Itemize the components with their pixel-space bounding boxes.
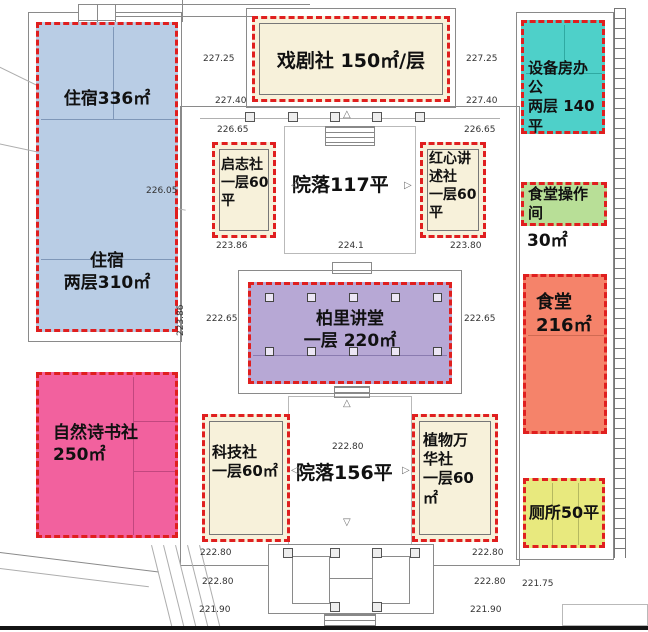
zone-drama-club: 戏剧社 150㎡/层	[252, 16, 450, 102]
elevation-mark: 223.86	[216, 241, 248, 251]
north-symbol-line	[79, 20, 115, 21]
column	[265, 293, 274, 302]
elevation-mark: 222.65	[206, 314, 238, 324]
upper-courtyard-label: 院落117平	[292, 170, 389, 197]
elevation-mark: 221.75	[522, 579, 554, 589]
elevation-mark: 222.80	[474, 577, 506, 587]
upper-courtyard-stairs	[325, 126, 375, 146]
adjacent-plan-fragment	[562, 604, 648, 626]
zone-tech-club: 科技社 一层60㎡	[202, 414, 290, 542]
triangle-right-icon: ▷	[402, 466, 410, 476]
elevation-mark: 222.80	[332, 442, 364, 452]
floor-plan: 住宿336㎡ 住宿 两层310㎡ 戏剧社 150㎡/层 设备房办公 两层 140…	[0, 0, 648, 632]
zone-canteen-kitchen-label: 食堂操作 间	[528, 185, 588, 223]
column	[415, 112, 425, 122]
elevation-mark: 223.80	[450, 241, 482, 251]
interior-wall	[133, 471, 175, 472]
zone-hongxin-club-label: 红心讲 述社 一层60 平	[429, 151, 476, 223]
zone-equipment-office-label: 设备房办公 两层 140平	[528, 59, 602, 136]
elevation-mark: 227.25	[203, 54, 235, 64]
zone-plant-club: 植物万 华社 一层60 ㎡	[412, 414, 498, 542]
zone-canteen-kitchen-area-label: 30㎡	[527, 226, 568, 251]
zone-canteen-kitchen: 食堂操作 间	[521, 182, 607, 226]
elevation-mark: 227.40	[466, 96, 498, 106]
column	[372, 112, 382, 122]
zone-toilet: 厕所50平	[523, 478, 605, 548]
zone-qizhi-club: 启志社 一层60 平	[212, 142, 276, 238]
site-line	[182, 0, 183, 22]
zone-dorm-336-label: 住宿336㎡	[39, 89, 175, 111]
elevation-mark: 222.80	[202, 577, 234, 587]
hall-south-steps	[334, 386, 370, 398]
zone-nature-poetry-club: 自然诗书社 250㎡	[36, 372, 178, 538]
zone-canteen-label: 食堂 216㎡	[536, 291, 592, 337]
column	[245, 112, 255, 122]
zone-dorm-310: 住宿 两层310㎡	[36, 213, 178, 332]
column	[433, 293, 442, 302]
zone-lecture-hall: 柏里讲堂 一层 220㎡	[248, 282, 452, 384]
zone-toilet-label: 厕所50平	[526, 503, 602, 523]
elevation-mark: 222.80	[200, 548, 232, 558]
elevation-mark: 224.1	[338, 241, 364, 251]
interior-wall	[133, 421, 175, 422]
scale-strip	[614, 8, 626, 558]
elevation-mark: 223.86	[176, 305, 186, 337]
zone-dorm-310-label: 住宿 两层310㎡	[39, 251, 175, 295]
elevation-mark: 226.65	[217, 125, 249, 135]
zone-plant-club-label: 植物万 华社 一层60 ㎡	[423, 431, 474, 508]
site-line	[95, 4, 310, 5]
triangle-down-icon: ▽	[343, 518, 351, 528]
zone-drama-club-label: 戏剧社 150㎡/层	[255, 49, 447, 73]
path-line	[0, 568, 149, 587]
interior-wall	[41, 119, 175, 120]
elevation-mark: 226.05	[146, 186, 178, 196]
slope-hatch	[151, 545, 172, 627]
zone-lecture-hall-label: 柏里讲堂 一层 220㎡	[251, 309, 449, 353]
page-edge-line	[0, 626, 648, 630]
column	[410, 548, 420, 558]
column	[372, 548, 382, 558]
column	[330, 602, 340, 612]
zone-dorm-336: 住宿336㎡	[36, 22, 178, 213]
gate-pavilion-left	[292, 556, 330, 604]
zone-equipment-office: 设备房办公 两层 140平	[521, 20, 605, 134]
elevation-mark: 227.25	[466, 54, 498, 64]
zone-canteen: 食堂 216㎡	[523, 274, 607, 434]
column	[391, 293, 400, 302]
gate-axis-line	[330, 578, 372, 579]
hall-north-porch	[332, 262, 372, 274]
column	[349, 293, 358, 302]
elevation-mark: 226.65	[464, 125, 496, 135]
zone-hongxin-club: 红心讲 述社 一层60 平	[420, 142, 486, 238]
lower-courtyard-label: 院落156平	[296, 458, 393, 485]
zone-nature-poetry-club-label: 自然诗书社 250㎡	[53, 423, 138, 467]
column	[330, 548, 340, 558]
elevation-mark: 227.40	[215, 96, 247, 106]
column	[283, 548, 293, 558]
elevation-mark: 221.90	[470, 605, 502, 615]
column	[307, 293, 316, 302]
triangle-up-icon: △	[343, 110, 351, 120]
triangle-left-icon: ◁	[291, 466, 299, 476]
path-line	[0, 552, 159, 572]
column	[288, 112, 298, 122]
column	[330, 112, 340, 122]
elevation-mark: 221.90	[199, 605, 231, 615]
elevation-mark: 222.80	[472, 548, 504, 558]
triangle-up-icon: △	[343, 399, 351, 409]
elevation-mark: 222.65	[464, 314, 496, 324]
gate-pavilion-right	[372, 556, 410, 604]
column	[372, 602, 382, 612]
zone-qizhi-club-label: 启志社 一层60 平	[221, 157, 268, 211]
zone-tech-club-label: 科技社 一层60㎡	[212, 443, 278, 481]
triangle-left-icon: ◁	[291, 181, 299, 191]
triangle-right-icon: ▷	[404, 181, 412, 191]
